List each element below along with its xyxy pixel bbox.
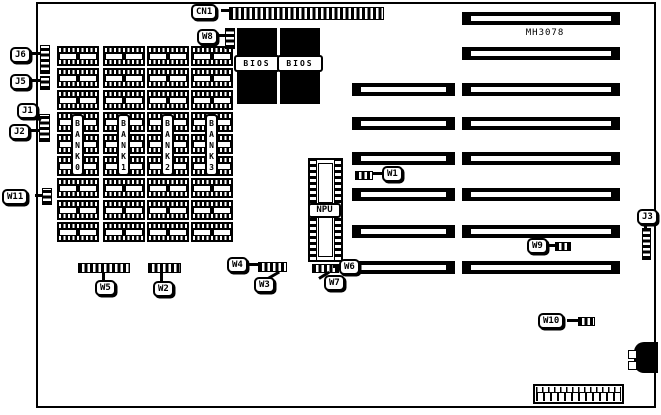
npu-window-bottom (318, 217, 333, 257)
memory-chip (147, 178, 189, 198)
label-w9: W9 (527, 238, 548, 254)
memory-chip (147, 90, 189, 110)
memory-chip (103, 200, 145, 220)
expansion-slot-segment-long (462, 83, 620, 96)
memory-chip (191, 90, 233, 110)
memory-chip (57, 46, 99, 66)
keyboard-connector (634, 342, 658, 373)
bios-chip-1-label: BIOS (234, 55, 280, 72)
expansion-slot-segment-long (462, 188, 620, 201)
label-w7: W7 (324, 275, 345, 291)
w9-jumper (555, 242, 571, 251)
memory-chip (191, 222, 233, 242)
bios-chip-2-label: BIOS (277, 55, 323, 72)
memory-chip (57, 178, 99, 198)
j3-connector (642, 228, 651, 260)
memory-chip (147, 68, 189, 88)
j6-connector (40, 45, 50, 74)
memory-chip (103, 222, 145, 242)
memory-chip (57, 90, 99, 110)
label-w3: W3 (254, 277, 275, 293)
expansion-slot-segment-long (462, 225, 620, 238)
leader-w11 (35, 194, 42, 197)
leader-w10 (567, 319, 578, 322)
memory-chip (147, 46, 189, 66)
label-w10: W10 (538, 313, 564, 329)
expansion-slot-segment-long (462, 117, 620, 130)
bios-chip-2: BIOS (280, 28, 320, 104)
leader-w8 (218, 34, 225, 37)
label-w1: W1 (382, 166, 403, 182)
label-j3: J3 (637, 209, 658, 225)
label-j6: J6 (10, 47, 31, 63)
memory-chip (103, 68, 145, 88)
expansion-slot-segment-short (352, 225, 455, 238)
memory-chip (57, 68, 99, 88)
npu-socket: NPU (308, 158, 343, 262)
bank0-label: BANK0 (71, 114, 84, 176)
motherboard-diagram: CN1 W8 BIOS BIOS MH3078 J6 J5 J1 J2 W11 … (0, 0, 661, 415)
memory-chip (191, 46, 233, 66)
expansion-slot-segment-short (352, 261, 455, 274)
j5-connector (40, 76, 50, 90)
expansion-slot-segment-long (462, 261, 620, 274)
memory-chip (103, 46, 145, 66)
keyboard-connector-pin (628, 350, 637, 359)
expansion-slot-segment-long (462, 47, 620, 60)
w8-jumper (225, 28, 235, 49)
memory-chip (103, 90, 145, 110)
memory-chip (191, 178, 233, 198)
power-connector (533, 384, 624, 404)
bank3-label: BANK3 (205, 114, 218, 176)
expansion-slot-segment-short (352, 83, 455, 96)
expansion-slot-segment-long (462, 12, 620, 25)
label-j1: J1 (17, 103, 38, 119)
memory-chip (147, 200, 189, 220)
label-w6: W6 (339, 259, 360, 275)
label-w5: W5 (95, 280, 116, 296)
memory-chip (103, 178, 145, 198)
w2-jumper (148, 263, 181, 273)
memory-chip (57, 222, 99, 242)
label-j2: J2 (9, 124, 30, 140)
label-w11: W11 (2, 189, 28, 205)
expansion-slot-segment-short (352, 152, 455, 165)
w1-jumper (355, 171, 373, 180)
npu-window-top (318, 163, 333, 203)
leader-w4 (248, 263, 258, 266)
memory-chip (57, 200, 99, 220)
memory-chip (191, 68, 233, 88)
leader-w1 (372, 172, 382, 175)
power-connector-pins-bottom (536, 393, 621, 401)
leader-j5 (31, 79, 40, 82)
leader-j6 (31, 52, 40, 55)
expansion-slot-segment-short (352, 117, 455, 130)
bios-chip-1: BIOS (237, 28, 277, 104)
expansion-slot-segment-short (352, 188, 455, 201)
expansion-slot-segment-long (462, 152, 620, 165)
board-part-number: MH3078 (505, 28, 585, 38)
w11-connector (42, 188, 52, 205)
bank2-label: BANK2 (161, 114, 174, 176)
w4-w3-jumper (258, 262, 287, 272)
cn1-connector (229, 7, 384, 20)
w10-jumper (578, 317, 595, 326)
leader-j2 (30, 129, 39, 132)
label-cn1: CN1 (191, 4, 217, 20)
leader-w9 (548, 244, 556, 247)
memory-chip (191, 200, 233, 220)
bank1-label: BANK1 (117, 114, 130, 176)
label-j5: J5 (10, 74, 31, 90)
label-w8: W8 (197, 29, 218, 45)
leader-cn1 (221, 9, 230, 12)
label-w2: W2 (153, 281, 174, 297)
memory-chip (147, 222, 189, 242)
keyboard-connector-pin (628, 361, 637, 370)
label-w4: W4 (227, 257, 248, 273)
npu-label: NPU (308, 203, 341, 218)
